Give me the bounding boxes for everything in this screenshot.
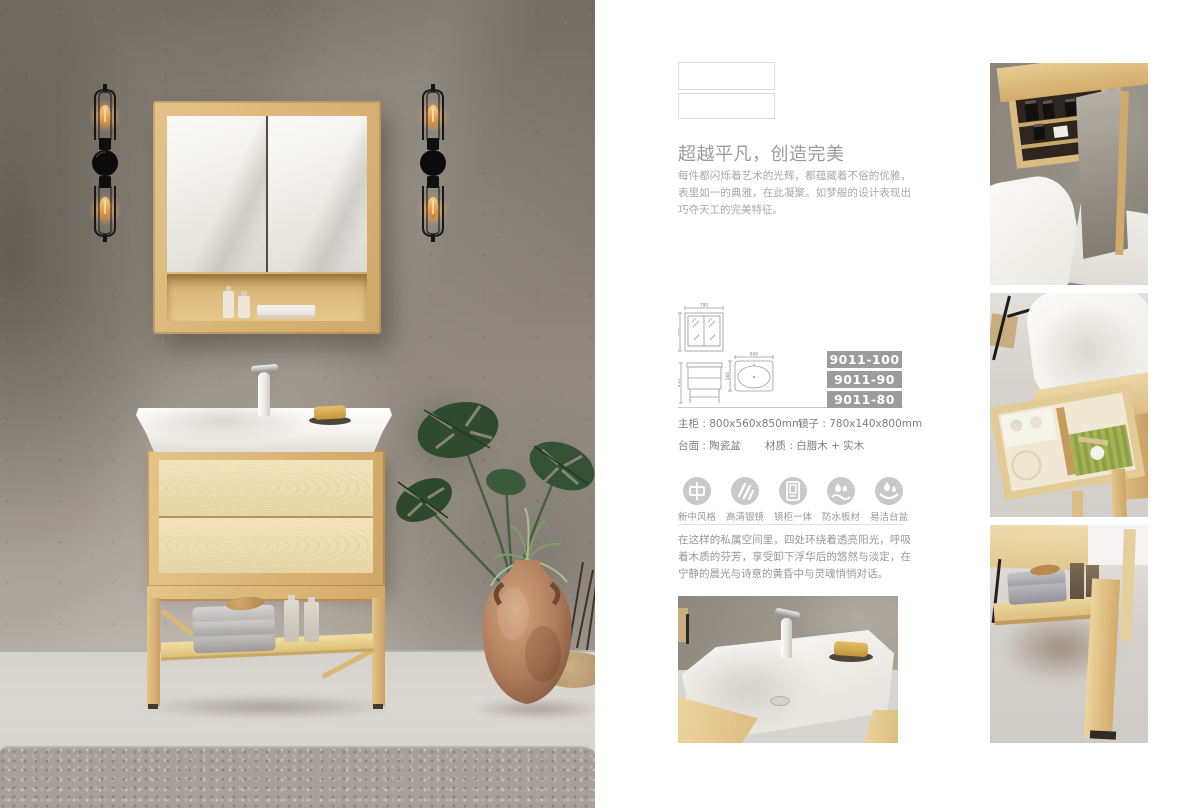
vanity-cabinet [147, 450, 385, 587]
stand-leg [1111, 469, 1127, 517]
basin-detail-photo [678, 596, 898, 743]
spec-material: 材质 : 白腊木 + 实木 [765, 438, 864, 453]
mirror-door-right [268, 116, 367, 272]
black-jar [1033, 126, 1046, 140]
drain-hole [770, 696, 790, 706]
page-title: 超越平凡，创造完美 [678, 140, 918, 166]
feature-label: 防水板材 [822, 509, 860, 523]
stand-leg-left [147, 598, 160, 706]
shag-rug [0, 746, 595, 808]
mirror-width-label: 780 [700, 303, 709, 309]
feature-label: 新中风格 [678, 509, 716, 523]
faucet [258, 372, 270, 416]
leg-foot [373, 704, 383, 709]
vanity-height-label: 850 [678, 379, 682, 388]
feature-item: 易洁台盆 [865, 477, 913, 523]
organizer-box [1001, 407, 1058, 448]
feature-label: 镜柜一体 [774, 509, 812, 523]
open-drawer-photo [990, 293, 1148, 517]
waterproof-drops-icon [827, 477, 855, 505]
towel-tray [257, 305, 315, 318]
white-box [1053, 125, 1068, 138]
divider-line [678, 524, 903, 525]
feature-item: 高清银镜 [721, 477, 769, 523]
towel-stack [192, 605, 276, 654]
spec-main-cabinet: 主柜 : 800x560x850mm [678, 416, 802, 431]
soap [834, 641, 869, 657]
feature-item: 新中风格 [673, 477, 721, 523]
intro-paragraph: 每件都闪烁着艺术的光辉，都蕴藏着不俗的优雅，表里如一的典雅，在此凝聚。如梦般的设… [678, 168, 911, 219]
logo-box-1 [678, 62, 775, 90]
stand-leg [1072, 491, 1083, 517]
leg-foot [148, 704, 158, 709]
zhong-character-icon [683, 477, 711, 505]
mirror-cabinet-icon [779, 477, 807, 505]
spec-countertop: 台面 : 陶瓷盆 [678, 438, 741, 453]
glass-bottle [223, 291, 234, 318]
black-jar [1042, 103, 1055, 119]
edge-metal-sliver [686, 614, 689, 644]
mirror-height-label: 800 [678, 328, 681, 337]
feature-list: 新中风格 高清银镜 镜柜一体 [673, 477, 913, 523]
model-badge-2: 9011-90 [827, 371, 902, 388]
stand-top-rail [147, 586, 385, 601]
drawer-top [159, 460, 373, 518]
bottle [284, 600, 299, 642]
glass-bottle [238, 296, 250, 318]
mirror-doors [167, 116, 367, 272]
leg-foot [1090, 730, 1116, 739]
soap [314, 405, 347, 420]
basin-depth-label: 560 [725, 372, 731, 381]
faucet [781, 618, 792, 658]
catalog-page: 超越平凡，创造完美 每件都闪烁着艺术的光辉，都蕴藏着不俗的优雅，表里如一的典雅，… [0, 0, 1190, 808]
feature-label: 高清银镜 [726, 509, 764, 523]
logo-box-2 [678, 93, 775, 119]
feature-label: 易洁台盆 [870, 509, 908, 523]
mirror-cabinet-open-photo [990, 63, 1148, 285]
black-jar [1024, 103, 1039, 121]
feature-item: 防水板材 [817, 477, 865, 523]
stand-shelf-photo [990, 525, 1148, 743]
basin-width-label: 800 [750, 352, 759, 358]
candle [1009, 448, 1044, 483]
feature-item: 镜柜一体 [769, 477, 817, 523]
bright-background [1088, 525, 1148, 565]
drawer-fronts [159, 460, 373, 573]
closing-paragraph: 在这样的私属空间里，四处环绕着透亮阳光，呼吸着木质的芬芳，享受卸下浮华后的悠然与… [678, 532, 911, 583]
mirror-door-left [167, 116, 266, 272]
mirror-cabinet [153, 101, 381, 334]
drawer-bottom [159, 518, 373, 574]
main-product-photo [0, 0, 595, 808]
model-badge-3: 9011-80 [827, 391, 902, 408]
mirror-shine-icon [731, 477, 759, 505]
black-jar [1064, 101, 1078, 116]
wall-lamp-right [413, 82, 453, 244]
vanity-floor-shadow [133, 696, 401, 718]
spec-mirror: 镜子 : 780x140x800mm [798, 416, 922, 431]
amber-bottle [1070, 563, 1084, 599]
cabinet-open-shelf [167, 274, 367, 321]
terracotta-vase [477, 554, 577, 714]
easy-clean-basin-icon [875, 477, 903, 505]
bottle [304, 602, 319, 642]
wall-lamp-left [85, 82, 125, 244]
model-badge-1: 9011-100 [827, 351, 902, 368]
